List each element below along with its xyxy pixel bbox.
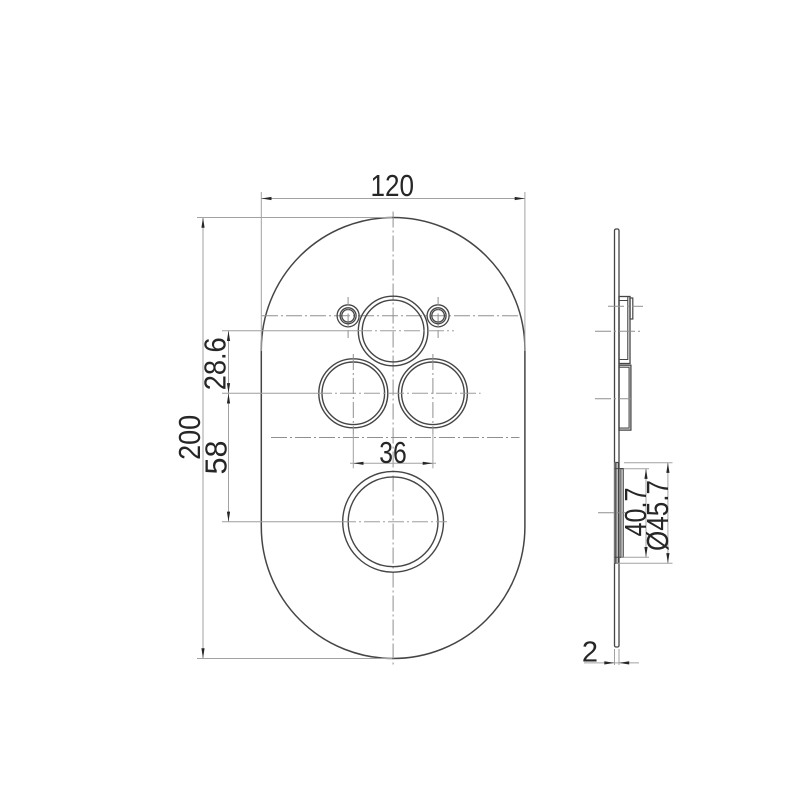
- svg-text:2: 2: [582, 637, 598, 669]
- svg-text:120: 120: [371, 168, 415, 203]
- svg-text:36: 36: [379, 435, 407, 470]
- svg-text:Ø45.7: Ø45.7: [640, 480, 675, 551]
- svg-text:58: 58: [198, 441, 233, 475]
- svg-text:28.6: 28.6: [198, 337, 233, 390]
